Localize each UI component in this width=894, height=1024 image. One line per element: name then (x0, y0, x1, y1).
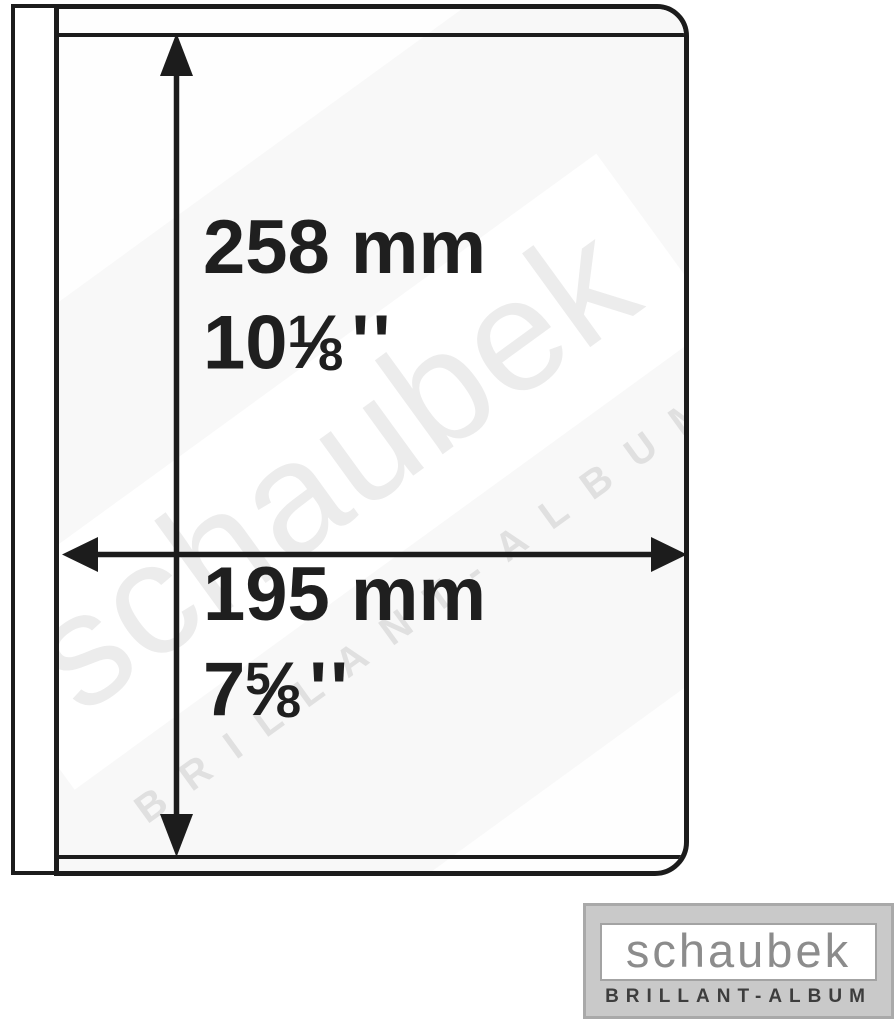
logo-subtitle-text: BRILLANT-ALBUM (586, 986, 891, 1008)
top-weld-seam-line (59, 33, 684, 37)
width-inch-value: 75⁄8'' (203, 637, 486, 744)
height-dimension-label: 258 mm 101⁄8'' (203, 206, 486, 397)
binder-strip (11, 4, 58, 875)
height-mm-value: 258 mm (203, 206, 486, 290)
brand-logo-plate: schaubek BRILLANT-ALBUM (583, 903, 894, 1019)
product-dimension-diagram: schaubek BRILLANT-ALBUM 258 mm 101⁄8'' 1… (0, 0, 894, 1024)
stock-sheet: schaubek BRILLANT-ALBUM (54, 4, 689, 876)
logo-wordmark-box: schaubek (600, 923, 877, 981)
height-inch-mark: '' (351, 300, 393, 385)
watermark: schaubek BRILLANT-ALBUM (54, 4, 689, 876)
width-mm-value: 195 mm (203, 553, 486, 637)
height-inch-value: 101⁄8'' (203, 290, 486, 397)
width-inch-denominator: 8 (276, 676, 301, 727)
bottom-weld-seam-line (59, 855, 684, 859)
width-dimension-label: 195 mm 75⁄8'' (203, 553, 486, 744)
width-inch-whole: 7 (203, 647, 245, 732)
height-inch-denominator: 8 (318, 329, 343, 380)
width-inch-mark: '' (309, 647, 351, 732)
logo-brand-text: schaubek (626, 927, 851, 974)
height-inch-whole: 10 (203, 300, 288, 385)
